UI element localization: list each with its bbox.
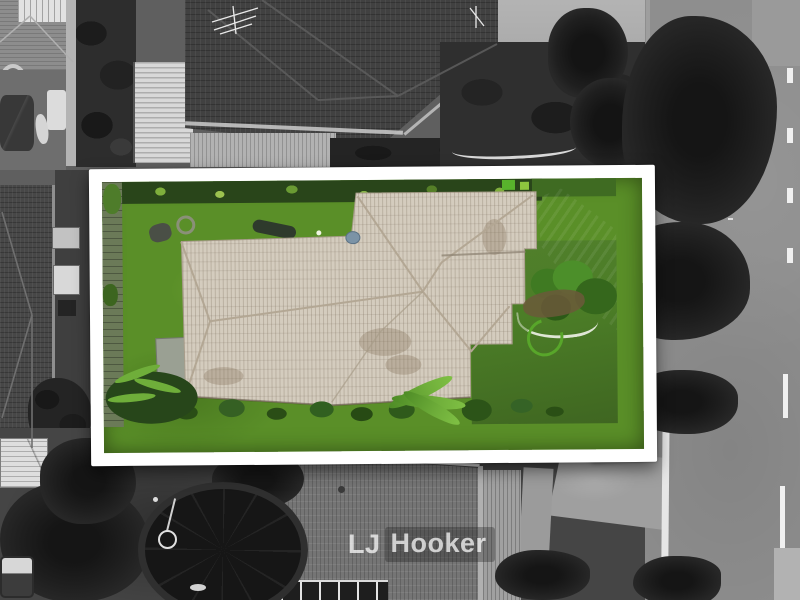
pergola-grid [18,0,70,22]
aerial-photo: LJ Hooker [0,0,800,600]
roof-vent [338,486,345,493]
corrugated-shed-roof [133,62,193,163]
shade-tarp [0,95,34,151]
garden-cart [0,556,34,598]
lane-marking-dash [783,374,788,418]
yard-box [58,300,76,316]
street-tree-canopy [633,556,721,600]
watermark-text-lj: LJ [348,529,381,560]
road-mark [728,218,733,220]
garden-shrubs-bw [495,550,590,600]
property-photo [102,178,644,453]
property-highlight-frame [89,165,657,466]
trampoline-logo [190,584,206,591]
watermark: LJ Hooker [348,526,495,562]
patio-table [47,90,66,130]
footpath-corner [774,548,800,600]
yard-object [153,497,158,502]
satellite-dish [345,231,360,244]
ac-unit [52,227,80,249]
vegetation-strip [76,0,136,167]
watermark-text-hooker: Hooker [385,527,495,562]
basketball-hoop [158,530,177,549]
ac-unit [53,265,80,295]
corrugated-fence [190,133,336,167]
